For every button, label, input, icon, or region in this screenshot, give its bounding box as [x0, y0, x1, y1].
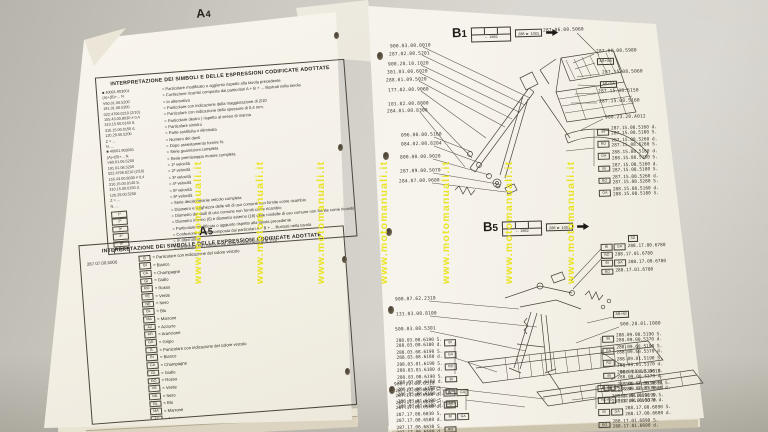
variant-row: RO 287.15.08.5260 d.287.15.08.5280 S. [598, 174, 658, 186]
b5-left-variant-group-2: BIGA 287.17.08.6830 S.287.17.00.6580 d. … [395, 387, 469, 432]
variant-row: RO 288.17.01.6780 [601, 250, 666, 259]
color-code-box: BI [444, 414, 456, 421]
color-code-box: BI [601, 260, 613, 267]
part-number: 288.03.01.6180 d. [397, 367, 443, 374]
watermark-text: www.motomanuali.it [315, 134, 329, 310]
color-code-box: GA [599, 189, 611, 196]
part-number: 287.17.00.6580 d. [396, 417, 442, 424]
variant-code-box: AB+GA [597, 58, 615, 65]
part-number: 288.03.00.6180 d. [396, 343, 442, 350]
color-code-box: BI [598, 409, 610, 416]
color-code-box: BI [601, 244, 613, 251]
color-code-box: GA [457, 413, 469, 420]
part-number: 288.17.01.6780 [615, 268, 653, 274]
part-number: 288.17.00.6600 d. [625, 411, 671, 418]
color-code-box: RO [444, 401, 456, 408]
color-code-box: GA [598, 153, 610, 160]
color-code-box: BI [603, 372, 615, 379]
variant-row: RO 288.03.01.6190 S.288.03.01.6180 d. [397, 361, 457, 373]
color-code-box: GA [444, 351, 456, 358]
b5-top-right-variants: BIGA 288.17.00.6780 RO 288.17.01.6780 BI… [601, 242, 667, 277]
variant-row: RO 287.17.06.6830 S.287.17.06.6580 d. [396, 423, 469, 432]
color-code-box: GA [456, 389, 468, 396]
color-code-box: GA [610, 384, 622, 391]
section-b5-title: B5 [483, 220, 498, 235]
color-code-box: RO [598, 177, 610, 184]
watermark-text: www.motomanuali.it [565, 134, 579, 310]
color-code-box: GA [611, 409, 623, 416]
variant-row: BIGA 288.17.00.6780 [601, 242, 666, 251]
variant-row: BI 287.15.08.5160 d.287.15.08.5180 S. [597, 125, 657, 137]
binder-hole [389, 386, 395, 394]
photo-of-parts-catalog: A4 INTERPRETAZIONE DEI SIMBOLI E DELLE E… [0, 0, 768, 432]
color-code-box: GA [614, 260, 626, 267]
b1-validity: ← 1982 [472, 35, 510, 41]
color-code-box: BI [443, 389, 455, 396]
color-code-box: RO [445, 363, 457, 370]
part-number: 288.09.68.5370 d. [616, 350, 662, 357]
part-number: 287.15.08.5280 S. [611, 143, 657, 150]
variant-row: BIGA 288.17.00.6780 [601, 258, 666, 267]
part-number: 288.17.01.6600 d. [613, 423, 659, 430]
variant-code-box: 3D [628, 235, 638, 242]
variant-row: BIGA 287.17.08.6830 S.287.17.00.6580 d. [395, 387, 468, 400]
variant-row: RO 288.17.01.6890 S.288.17.01.6600 d. [598, 393, 671, 406]
variant-code-box: AB+GA [600, 81, 618, 88]
color-code-box: BI [602, 336, 614, 343]
color-code-box: GA [602, 348, 614, 355]
variant-row: GA 288.15.08.5160 d.288.15.08.5180 S. [599, 186, 659, 198]
variant-row: RO 288.17.01.6780 [601, 267, 666, 276]
section-b1-title: B1 [452, 26, 467, 41]
variant-row: BI 287.15.08.5160 d.287.15.08.5180 S. [598, 162, 658, 174]
variant-row: GA 288.15.08.5160 d.288.15.08.5180 S. [598, 149, 658, 161]
part-number: 288.17.00.6780 [628, 243, 666, 249]
part-number: 288.03.68.6180 d. [396, 355, 442, 362]
color-code-box: BI [444, 339, 456, 346]
b1-variant-group: BI 287.15.08.5160 d.287.15.08.5180 S. RO… [597, 125, 659, 200]
variant-row: RO 287.17.06.6830 S.287.17.06.6580 d. [396, 399, 469, 412]
b1-frame-range: 288 ► 1001 [515, 29, 542, 38]
watermark-text: www.motomanuali.it [440, 134, 454, 310]
color-code-box: RO [601, 252, 613, 259]
color-code-box: BI [597, 385, 609, 392]
watermark-text: www.motomanuali.it [503, 134, 517, 310]
color-code-box: RO [598, 421, 610, 428]
part-number: 288.09.01.5370 d. [617, 362, 663, 369]
part-number: 287.17.06.6580 d. [396, 405, 442, 412]
part-number: 287.15.08.5280 S. [613, 179, 659, 186]
b5-right-variant-group-2: BIGA 288.17.08.6890 S.288.17.00.6600 d. … [597, 381, 671, 432]
part-number: 287.15.08.5180 S. [611, 130, 657, 137]
part-number: 288.09.00.5370 d. [616, 337, 662, 344]
color-code-box: RO [444, 426, 456, 432]
variant-row: BI 288.09.00.5190 S.288.09.00.5370 d. [602, 332, 662, 344]
variant-row: BIGA 288.17.08.6890 S.288.17.00.6600 d. [598, 405, 671, 418]
part-number: 288.15.08.5180 S. [613, 191, 659, 198]
color-code-box: BI [598, 165, 610, 172]
color-code-box: RO [603, 360, 615, 367]
variant-row: GA 288.09.68.5190 S.288.09.68.5370 d. [602, 344, 662, 356]
part-number: 288.17.01.6780 [615, 251, 653, 257]
color-code-box: RO [598, 397, 610, 404]
variant-row: BIGA 288.17.08.6890 S.288.17.00.6600 d. [597, 381, 670, 394]
variant-row: BI 288.03.00.6190 S.288.03.00.6180 d. [396, 337, 456, 349]
part-number: 288.17.01.6600 d. [612, 399, 658, 406]
part-number: 288.17.00.6600 d. [624, 386, 670, 393]
variant-row: RO 288.17.01.6890 S.288.17.01.6600 d. [598, 417, 671, 430]
color-code-box: RO [597, 141, 609, 148]
color-code-box: BI [445, 376, 457, 383]
part-number: 287.17.00.6580 d. [395, 393, 441, 400]
color-code-box: BI [597, 129, 609, 136]
color-code-box: RO [601, 268, 613, 275]
variant-row: GA 288.03.68.6190 S.288.03.68.6180 d. [396, 349, 456, 361]
part-number: 287.15.08.5180 S. [612, 167, 658, 174]
b1-validity-table: ← 1982 [471, 26, 511, 42]
b5-leader-lines [429, 249, 625, 410]
watermark-text: www.motomanuali.it [192, 134, 206, 310]
variant-row: RO 287.15.08.5260 d.287.15.08.5280 S. [597, 137, 657, 149]
color-code-box: GA [614, 243, 626, 250]
binder-hole [377, 52, 383, 60]
watermark-text: www.motomanuali.it [378, 134, 392, 310]
part-number: 288.15.08.5180 S. [612, 155, 658, 162]
variant-code-box: AB+60 [613, 311, 629, 318]
variant-row: BIGA 287.17.08.6830 S.287.17.00.6580 d. [396, 411, 469, 424]
watermark-text: www.motomanuali.it [254, 134, 268, 310]
part-number: 288.17.00.6780 [628, 259, 666, 265]
variant-row: RO 288.09.01.5190 S.288.09.01.5370 d. [603, 356, 663, 368]
